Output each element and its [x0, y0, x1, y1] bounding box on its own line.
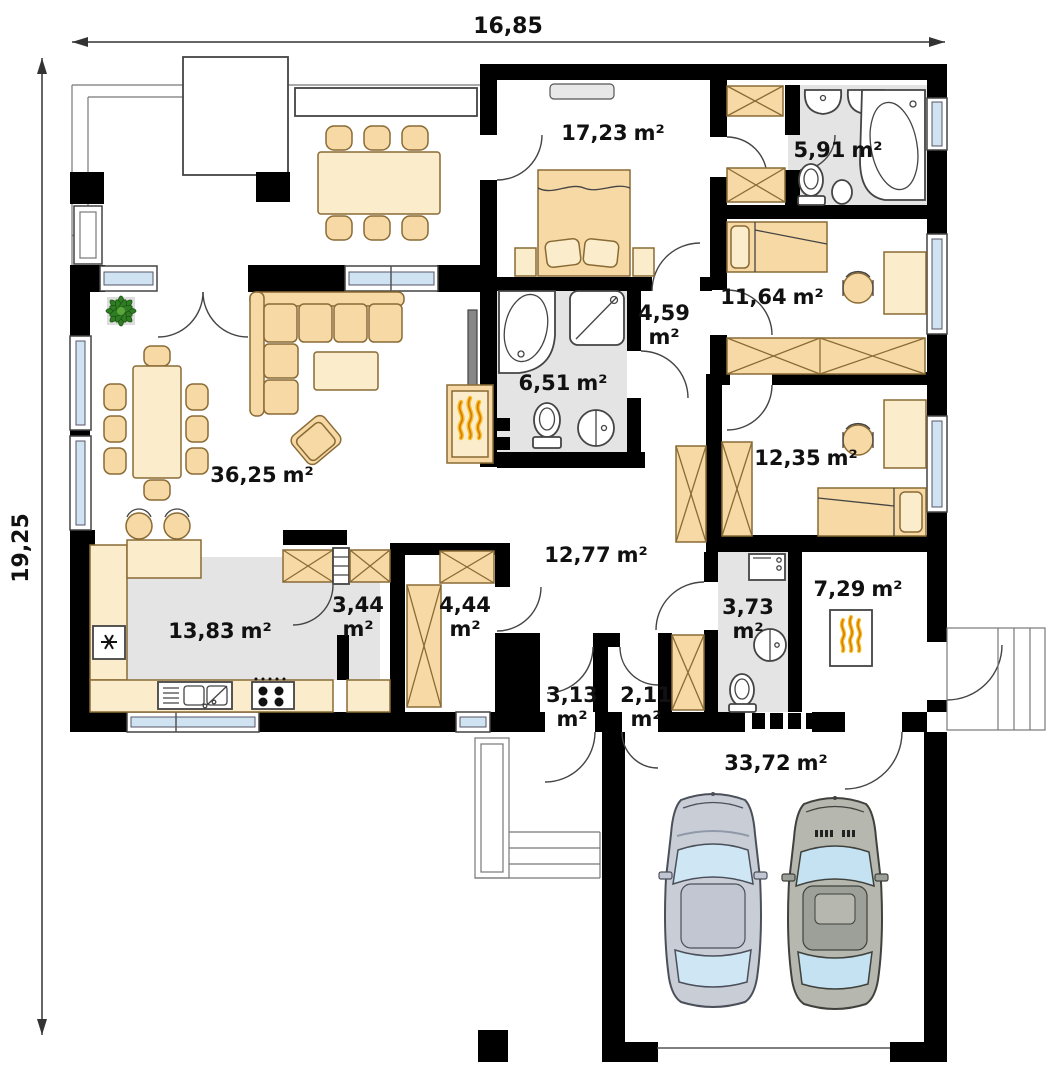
- side-porch: [947, 628, 1045, 730]
- wardrobe: [440, 551, 494, 583]
- window: [100, 266, 157, 291]
- window: [127, 712, 259, 732]
- terrace-pillar: [70, 172, 104, 204]
- window: [927, 234, 947, 334]
- wardrobe: [727, 86, 783, 116]
- tv: [468, 310, 477, 386]
- terrace: [72, 57, 480, 265]
- wardrobe: [407, 585, 441, 707]
- mirror: [782, 874, 795, 881]
- room-area-label-entry: 3,13m²: [546, 683, 598, 731]
- wardrobe: [727, 168, 785, 202]
- closet-corridor: [727, 86, 785, 202]
- room-area-label-hallway-upper: 4,59m²: [638, 301, 690, 349]
- window: [70, 436, 91, 530]
- boiler-exterior-door-arc: [947, 645, 1002, 700]
- window: [927, 416, 947, 512]
- pantry-cabinet: [350, 550, 390, 582]
- bar-stools: [126, 509, 190, 539]
- window: [70, 336, 91, 430]
- nightstand: [633, 248, 654, 276]
- front-porch: [475, 738, 600, 878]
- window: [927, 98, 947, 150]
- vestibule-door-arc: [620, 647, 658, 685]
- bedroom-lower: [722, 400, 926, 536]
- terrace-door-arc: [158, 292, 203, 337]
- vestibule-closet: [672, 635, 704, 710]
- room-area-label-bathroom-main: 6,51m²: [519, 371, 608, 395]
- dimension-width-label: 16,85: [473, 14, 543, 39]
- bathroom-main-door-arc: [641, 351, 688, 398]
- ladder: [333, 548, 349, 584]
- coffee-table: [314, 352, 378, 390]
- kitchen-island: [127, 540, 201, 578]
- terrace-door-arc: [203, 292, 248, 337]
- room-area-label-garage: 33,72m²: [724, 751, 828, 775]
- armchair: [288, 413, 343, 468]
- dining-set: [104, 346, 208, 500]
- shelf: [550, 84, 614, 99]
- boiler-room: [830, 610, 872, 666]
- pillow: [900, 492, 922, 532]
- shower: [570, 291, 624, 345]
- plant-icon: [106, 296, 136, 326]
- room-area-label-kitchen: 13,83m²: [168, 619, 272, 643]
- sunroof: [815, 894, 855, 924]
- master-bedroom-door-arc: [652, 243, 700, 291]
- fireplace: [447, 385, 493, 463]
- room-area-label-bedroom-lower: 12,35m²: [754, 446, 858, 470]
- kitchen-cabinet: [283, 550, 333, 582]
- corner-bathtub: [498, 290, 555, 373]
- sink: [578, 410, 614, 446]
- front-steps: [475, 832, 600, 878]
- washing-machine: [749, 554, 785, 580]
- front-door-arc: [545, 732, 595, 782]
- garage-access-door-arc: [622, 732, 658, 768]
- single-bed: [818, 488, 926, 536]
- dining-table: [133, 366, 181, 478]
- wc-door-arc: [656, 582, 704, 630]
- room-area-label-bedroom-upper: 11,64m²: [720, 285, 824, 309]
- bedroom-terrace-door-arc: [497, 135, 542, 180]
- wardrobe: [722, 442, 752, 536]
- mirror: [875, 874, 888, 881]
- bedroom-lower-door-arc: [727, 385, 772, 430]
- pillow: [731, 226, 749, 268]
- bidet: [832, 180, 852, 204]
- room-area-label-wardrobe-room: 4,44m²: [439, 593, 491, 641]
- side-steps: [998, 628, 1030, 730]
- window: [456, 712, 490, 732]
- toilet: [533, 403, 561, 448]
- toilet: [798, 164, 825, 205]
- rear-window: [798, 952, 872, 989]
- floor-plan-page: 16,85 19,25 17,23m² 5,91m² 11,64m² 4,59m…: [0, 0, 1064, 1080]
- rear-window: [675, 950, 751, 987]
- desk: [884, 400, 926, 468]
- wardrobe-room-door-arc: [497, 587, 541, 631]
- hall-closet: [676, 446, 706, 542]
- chimney-block: [183, 57, 288, 175]
- porch-pillar: [478, 1030, 508, 1062]
- room-area-label-living-room: 36,25m²: [210, 463, 314, 487]
- boiler-garage-door-arc: [845, 732, 902, 789]
- room-area-label-boiler-room: 7,29m²: [814, 577, 903, 601]
- car: [782, 796, 888, 1009]
- desk-chair: [843, 272, 873, 303]
- floor-plan: 16,85 19,25 17,23m² 5,91m² 11,64m² 4,59m…: [0, 0, 1064, 1080]
- nightstand: [515, 248, 536, 276]
- dimension-height: [37, 58, 47, 1035]
- room-area-label-hall: 12,77m²: [544, 543, 648, 567]
- pantry-counter: [347, 680, 390, 712]
- pillow: [545, 238, 582, 268]
- room-area-label-bathroom-small: 5,91m²: [794, 138, 883, 162]
- window: [345, 266, 438, 291]
- mirror: [754, 872, 767, 879]
- dimension-height-label: 19,25: [9, 513, 34, 583]
- master-bedroom: [515, 84, 654, 276]
- terrace-table: [318, 152, 440, 214]
- terrace-dining-set: [318, 126, 440, 240]
- stove: [252, 678, 294, 710]
- hall-wardrobe: [727, 338, 925, 374]
- terrace-pillar: [256, 172, 290, 202]
- desk: [884, 252, 926, 314]
- terrace-side-window: [74, 206, 102, 264]
- mirror: [659, 872, 672, 879]
- double-bed: [538, 170, 630, 276]
- kitchen-sink: [158, 682, 232, 709]
- toilet: [729, 674, 756, 712]
- single-bed: [727, 222, 827, 272]
- car: [659, 792, 767, 1007]
- living-room: [104, 292, 493, 539]
- garage: [657, 792, 890, 1048]
- pillow: [583, 238, 620, 267]
- terrace-bench: [295, 88, 477, 116]
- room-area-label-master-bedroom: 17,23m²: [561, 121, 665, 145]
